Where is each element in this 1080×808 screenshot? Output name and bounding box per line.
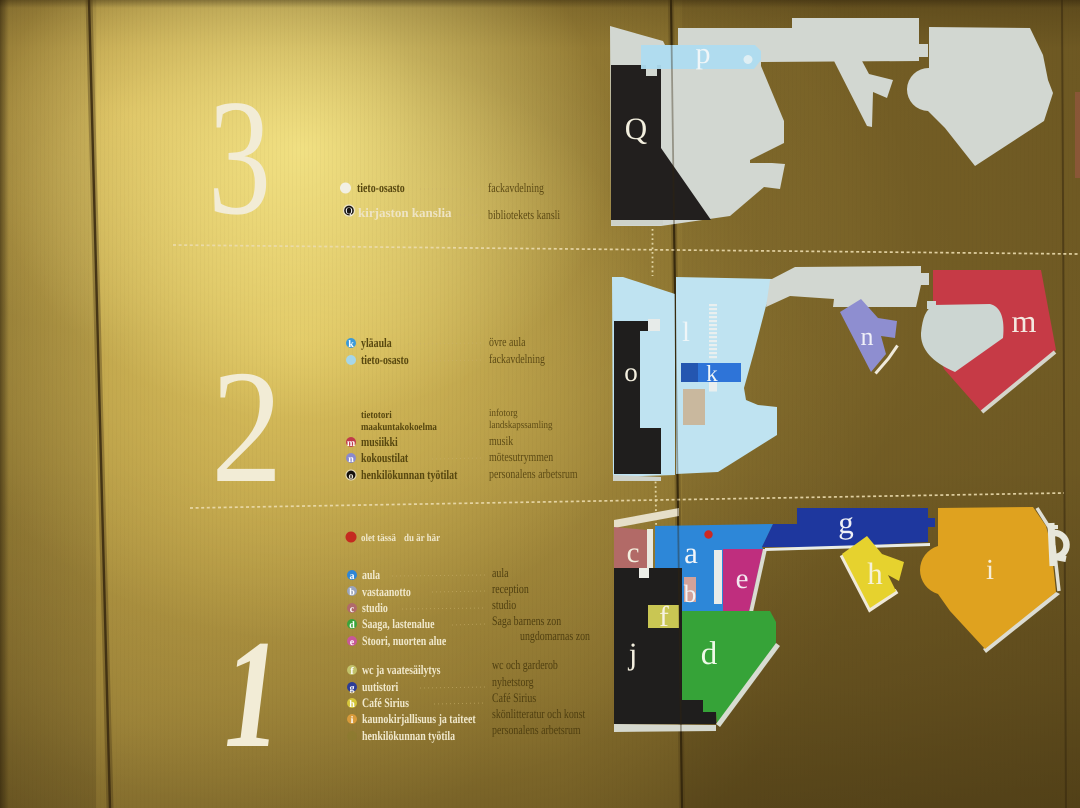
svg-text:wc och garderob: wc och garderob [492,657,558,672]
svg-text:k: k [348,339,354,350]
svg-text:studio: studio [362,600,388,615]
svg-text:vastaanotto: vastaanotto [362,584,411,599]
svg-text:i: i [986,554,994,586]
svg-text:e: e [736,563,749,595]
svg-text:c: c [627,537,640,569]
svg-text:d: d [701,636,718,672]
svg-text:n: n [861,322,874,351]
svg-text:o: o [349,471,354,482]
svg-text:h: h [867,556,883,591]
svg-text:du är här: du är här [404,533,440,544]
svg-text:Saga barnens zon: Saga barnens zon [492,613,562,628]
svg-text:aula: aula [492,565,509,580]
svg-text:Café Sirius: Café Sirius [362,695,409,710]
svg-text:p: p [696,37,711,70]
svg-text:fackavdelning: fackavdelning [488,180,544,195]
svg-text:Saaga, lastenalue: Saaga, lastenalue [362,616,435,631]
svg-text:tieto-osasto: tieto-osasto [361,352,409,367]
svg-text:3: 3 [208,65,271,249]
svg-text:musiikki: musiikki [361,434,398,449]
svg-text:personalens arbetsrum: personalens arbetsrum [492,722,581,737]
svg-text:g: g [350,683,355,694]
svg-text:Café Sirius: Café Sirius [492,690,536,705]
svg-text:k: k [706,361,718,386]
svg-text:studio: studio [492,597,516,612]
svg-text:e: e [350,637,355,648]
svg-text:m: m [347,438,356,449]
svg-text:Stoori, nuorten alue: Stoori, nuorten alue [362,633,446,648]
svg-text:reception: reception [492,581,529,596]
svg-text:Q: Q [625,111,647,146]
svg-text:kokoustilat: kokoustilat [361,450,409,465]
svg-text:h: h [349,699,355,710]
svg-text:Q: Q [345,206,353,217]
svg-text:g: g [838,505,854,540]
svg-text:1: 1 [214,608,291,780]
svg-text:mötesutrymmen: mötesutrymmen [489,449,554,464]
svg-text:maakuntakokoelma: maakuntakokoelma [361,422,438,433]
svg-text:musik: musik [489,433,514,448]
svg-text:b: b [349,587,355,598]
svg-text:henkilökunnan työtilat: henkilökunnan työtilat [361,467,458,482]
svg-text:olet tässä: olet tässä [361,533,397,544]
svg-text:a: a [684,535,698,570]
svg-text:aula: aula [362,567,380,582]
svg-text:j: j [628,636,638,671]
svg-text:fackavdelning: fackavdelning [489,351,545,366]
svg-text:kaunokirjallisuus ja taiteet: kaunokirjallisuus ja taiteet [362,711,476,726]
svg-text:n: n [348,454,354,465]
svg-text:o: o [624,357,638,387]
svg-text:landskapssamling: landskapssamling [489,420,553,431]
svg-text:uutistori: uutistori [362,679,399,694]
svg-text:m: m [1012,303,1037,339]
svg-text:infotorg: infotorg [489,408,518,419]
svg-text:personalens arbetsrum: personalens arbetsrum [489,466,578,481]
svg-text:övre aula: övre aula [489,334,526,349]
svg-text:nyhetstorg: nyhetstorg [492,674,534,689]
svg-text:ungdomarnas zon: ungdomarnas zon [520,628,590,643]
svg-text:yläaula: yläaula [361,335,392,350]
svg-text:c: c [350,604,355,615]
svg-text:b: b [684,581,697,608]
svg-text:f: f [659,601,669,633]
svg-text:2: 2 [211,338,283,517]
svg-text:tietotori: tietotori [361,410,392,421]
svg-text:henkilökunnan työtila: henkilökunnan työtila [362,728,455,743]
svg-text:i: i [351,715,354,726]
svg-text:d: d [349,620,355,631]
svg-text:l: l [682,317,690,348]
svg-text:bibliotekets kansli: bibliotekets kansli [488,207,560,222]
svg-text:kirjaston kanslia: kirjaston kanslia [358,205,452,220]
svg-text:skönlitteratur och konst: skönlitteratur och konst [492,706,586,721]
svg-text:tieto-osasto: tieto-osasto [357,180,405,195]
svg-text:wc ja vaatesäilytys: wc ja vaatesäilytys [362,662,440,677]
svg-text:a: a [350,571,355,582]
